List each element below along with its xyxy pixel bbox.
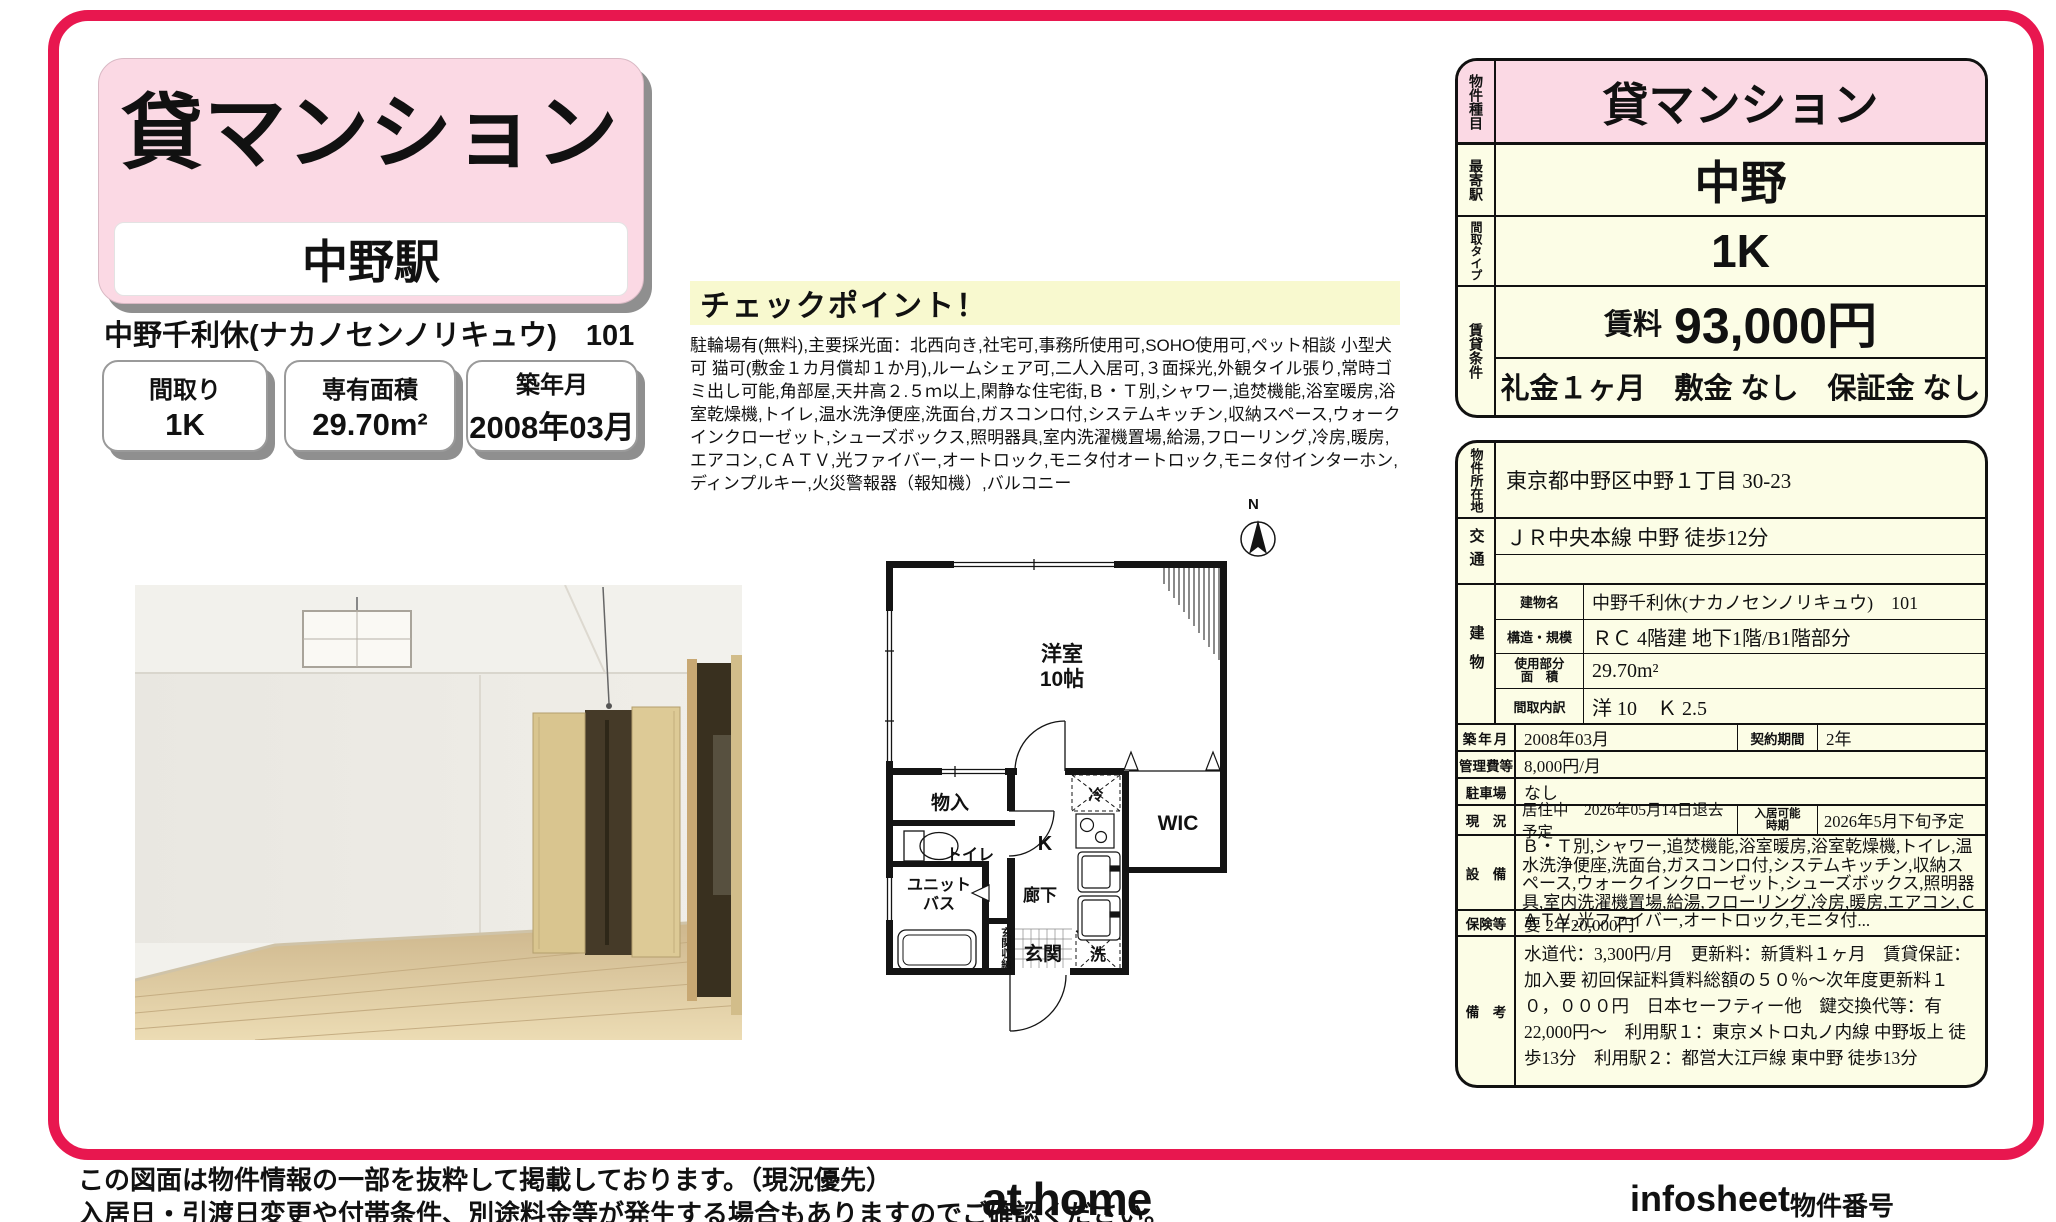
detail-layout-detail-row: 間取内訳 洋 10 Ｋ 2.5 [1496,689,1985,723]
room-label-toilet: トイレ [930,841,1010,865]
checkpoint-title: チェックポイント！ [690,281,988,325]
detail-area-value: 29.70m² [1584,654,1985,688]
detail-contract-label: 契約期間 [1738,725,1818,750]
detail-notes-value: 水道代：3,300円/月 更新料：新賃料１ヶ月 賃貸保証：加入要 初回保証料賃料… [1516,937,1985,1085]
summary-rent-label: 賃料 [1604,301,1662,343]
room-label-fridge: 冷 [1076,784,1116,805]
detail-area-row: 使用部分 面 積 29.70m² [1496,654,1985,689]
detail-access-value: ＪＲ中央本線 中野 徒歩12分 [1496,519,1985,555]
detail-insurance-label: 保険等 [1466,913,1507,933]
detail-built-value: 2008年03月 [1516,725,1738,750]
detail-layout-detail-value: 洋 10 Ｋ 2.5 [1584,689,1985,723]
detail-row-fee: 管理費等 8,000円/月 [1458,752,1985,779]
summary-row-station: 最寄駅 中野 [1458,145,1985,217]
detail-building-name-row: 建物名 中野千利休(ナカノセンノリキュウ) 101 [1496,585,1985,620]
summary-type-label: 物件種目 [1469,74,1483,130]
summary-rent-row: 賃料 93,000円 [1496,287,1985,359]
detail-structure-value: ＲＣ 4階建 地下1階/B1階部分 [1584,620,1985,654]
property-number: 物件番号 69741602082 [1788,1186,2056,1222]
detail-location-label: 物件所在地 [1470,448,1483,513]
detail-built-label2: 築年月 [1463,728,1510,748]
badge-layout-value: 1K [165,407,205,443]
room-label-hallway: 廊下 [1000,881,1080,906]
room-photo [135,585,742,1040]
detail-building-label: 建物 [1469,625,1484,683]
detail-building-name-label: 建物名 [1496,585,1584,619]
checkpoint-body: 駐輪場有(無料),主要採光面：北西向き,社宅可,事務所使用可,SOHO使用可,ペ… [690,334,1404,495]
badge-built-value: 2008年03月 [469,402,634,447]
detail-access-label: 交通 [1469,528,1484,574]
detail-equipment-value: Ｂ・Ｔ別,シャワー,追焚機能,浴室暖房,浴室乾燥機,トイレ,温水洗浄便座,洗面台… [1516,836,1985,909]
infosheet-label: infosheet [1630,1178,1790,1220]
room-label-kitchen: K [1025,833,1065,856]
badge-area: 専有面積 29.70m² [284,360,456,452]
detail-location-value: 東京都中野区中野１丁目 30-23 [1496,443,1985,517]
infosheet-page: 貸マンション 中野駅 中野千利休(ナカノセンノリキュウ) 101 間取り 1K … [0,0,2056,1222]
detail-row-access: 交通 ＪＲ中央本線 中野 徒歩12分 [1458,519,1985,585]
station-box: 中野駅 [114,222,628,296]
summary-layout-label: 間取タイプ [1470,221,1482,281]
building-name-line: 中野千利休(ナカノセンノリキュウ) 101 [104,312,649,354]
detail-fee-value: 8,000円/月 [1516,752,1985,777]
property-type-title: 貸マンション [98,66,642,185]
detail-row-building: 建物 建物名 中野千利休(ナカノセンノリキュウ) 101 構造・規模 ＲＣ 4階… [1458,585,1985,725]
badge-layout: 間取り 1K [102,360,268,452]
summary-type-value: 貸マンション [1496,61,1985,142]
detail-movein-label: 入居可能 時期 [1738,806,1818,834]
badge-area-label: 専有面積 [322,370,418,405]
detail-insurance-value: 要 2年20,000円 [1516,911,1985,935]
detail-movein-value: 2026年5月下旬予定 [1818,806,1985,834]
summary-terms-label: 賃貸条件 [1469,323,1483,379]
detail-status-value: 居住中 2026年05月14日退去予定 [1516,806,1738,834]
athome-logo: at home [982,1172,1151,1222]
detail-parking-label: 駐車場 [1466,782,1507,802]
compass-n-label: N [1248,496,1259,513]
detail-row-insurance: 保険等 要 2年20,000円 [1458,911,1985,937]
disclaimer-line1: この図面は物件情報の一部を抜粋して掲載しております。（現況優先） [78,1160,892,1197]
room-label-entrance: 玄関 [1003,939,1083,966]
summary-station-value: 中野 [1496,145,1985,215]
detail-notes-label: 備 考 [1466,1001,1507,1021]
station-name: 中野駅 [302,226,440,292]
detail-row-location: 物件所在地 東京都中野区中野１丁目 30-23 [1458,443,1985,519]
detail-access-empty [1496,555,1985,583]
compass-icon [1232,514,1284,564]
detail-layout-detail-label: 間取内訳 [1496,689,1584,723]
detail-structure-row: 構造・規模 ＲＣ 4階建 地下1階/B1階部分 [1496,620,1985,655]
room-label-main-size: 10帖 [1012,663,1112,693]
badge-area-value: 29.70m² [312,407,427,443]
detail-contract-value: 2年 [1818,725,1985,750]
summary-terms-value: 礼金１ヶ月 敷金 なし 保証金 なし [1496,359,1985,413]
detail-equipment-label: 設 備 [1466,863,1507,883]
summary-layout-value: 1K [1496,217,1985,285]
room-label-closet: 物入 [910,788,990,815]
detail-building-name-value: 中野千利休(ナカノセンノリキュウ) 101 [1584,585,1985,619]
detail-structure-label: 構造・規模 [1496,620,1584,654]
summary-row-type: 物件種目 貸マンション [1458,61,1985,145]
summary-table: 物件種目 貸マンション 最寄駅 中野 間取タイプ 1K 賃貸条件 賃料 93,0… [1455,58,1988,418]
detail-table: 物件所在地 東京都中野区中野１丁目 30-23 交通 ＪＲ中央本線 中野 徒歩1… [1455,440,1988,1088]
checkpoint-band: チェックポイント！ [690,281,1400,325]
room-label-wic: WIC [1138,812,1218,836]
badge-built-label: 築年月 [516,365,588,400]
detail-fee-label: 管理費等 [1459,755,1513,775]
badge-built: 築年月 2008年03月 [466,360,638,452]
detail-status-label: 現 況 [1466,810,1507,830]
summary-station-label: 最寄駅 [1469,159,1483,201]
room-label-washer: 洗 [1078,941,1118,965]
detail-row-status: 現 況 居住中 2026年05月14日退去予定 入居可能 時期 2026年5月下… [1458,806,1985,836]
summary-row-layout: 間取タイプ 1K [1458,217,1985,287]
detail-area-label: 使用部分 面 積 [1496,654,1584,688]
room-label-unit-bath: ユニット バス [894,876,984,914]
detail-row-equipment: 設 備 Ｂ・Ｔ別,シャワー,追焚機能,浴室暖房,浴室乾燥機,トイレ,温水洗浄便座… [1458,836,1985,911]
badge-layout-label: 間取り [149,370,221,405]
summary-rent-value: 93,000円 [1674,286,1877,358]
detail-row-built: 2008年03月 築年月 2008年03月 契約期間 2年 [1458,725,1985,752]
detail-row-notes: 備 考 水道代：3,300円/月 更新料：新賃料１ヶ月 賃貸保証：加入要 初回保… [1458,937,1985,1085]
summary-row-terms: 賃貸条件 賃料 93,000円 礼金１ヶ月 敷金 なし 保証金 なし [1458,287,1985,415]
